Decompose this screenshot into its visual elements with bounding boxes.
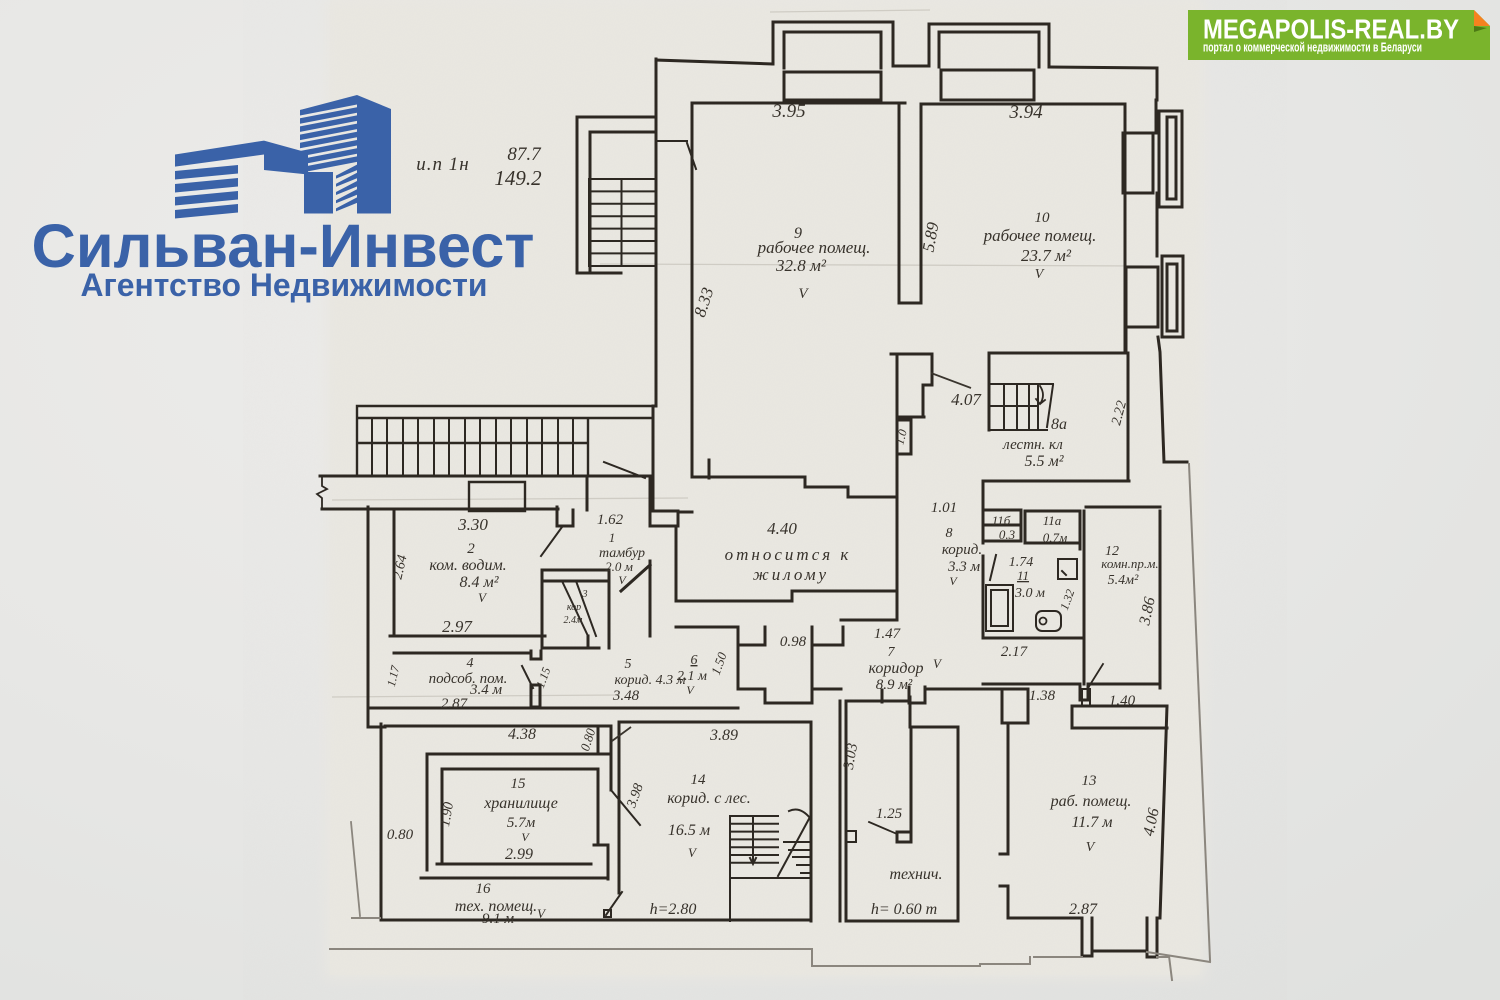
svg-text:3.95: 3.95 <box>771 101 805 122</box>
svg-text:149.2: 149.2 <box>494 166 542 190</box>
svg-text:16.5 м: 16.5 м <box>668 822 710 839</box>
svg-text:11: 11 <box>1017 568 1029 583</box>
svg-text:5.7м: 5.7м <box>507 815 536 831</box>
svg-text:корид. 4.3 м: корид. 4.3 м <box>614 673 685 688</box>
svg-text:4.40: 4.40 <box>767 519 797 538</box>
svg-text:5: 5 <box>625 657 632 672</box>
svg-text:и.п 1н: и.п 1н <box>416 154 469 175</box>
svg-text:2.4м: 2.4м <box>564 615 584 626</box>
svg-text:11б: 11б <box>992 513 1011 528</box>
svg-text:5.5 м²: 5.5 м² <box>1024 453 1064 470</box>
svg-text:8.4 м²: 8.4 м² <box>459 574 499 591</box>
svg-text:2.17: 2.17 <box>1001 644 1029 660</box>
svg-text:3: 3 <box>582 589 588 600</box>
svg-text:раб. помещ.: раб. помещ. <box>1050 793 1132 810</box>
svg-text:корид. с лес.: корид. с лес. <box>667 790 750 807</box>
svg-text:ком. водим.: ком. водим. <box>429 557 506 574</box>
svg-text:h= 0.60 m: h= 0.60 m <box>871 901 937 918</box>
svg-text:1.01: 1.01 <box>931 500 957 516</box>
svg-text:2: 2 <box>467 541 475 557</box>
svg-text:жилому: жилому <box>753 565 829 584</box>
svg-text:8.9 м²: 8.9 м² <box>876 677 913 693</box>
svg-text:1.40: 1.40 <box>1109 693 1136 709</box>
svg-text:0.3: 0.3 <box>999 527 1016 542</box>
svg-text:4.38: 4.38 <box>508 726 536 743</box>
svg-text:h=2.80: h=2.80 <box>650 901 697 918</box>
svg-text:Агентство Недвижимости: Агентство Недвижимости <box>81 267 488 303</box>
svg-text:32.8 м²: 32.8 м² <box>775 256 827 275</box>
svg-text:1.38: 1.38 <box>1029 688 1056 704</box>
svg-text:2.87: 2.87 <box>441 696 469 712</box>
svg-text:комн.пр.м.: комн.пр.м. <box>1101 556 1158 571</box>
svg-text:2.87: 2.87 <box>1069 901 1098 918</box>
svg-text:23.7 м²: 23.7 м² <box>1021 246 1072 265</box>
svg-text:11а: 11а <box>1043 513 1062 528</box>
svg-text:рабочее помещ.: рабочее помещ. <box>757 238 871 257</box>
svg-text:рабочее помещ.: рабочее помещ. <box>983 226 1097 245</box>
svg-text:V: V <box>1035 267 1045 282</box>
svg-text:13: 13 <box>1082 773 1097 789</box>
svg-text:87.7: 87.7 <box>507 144 542 165</box>
svg-text:1.47: 1.47 <box>874 626 902 642</box>
svg-text:1: 1 <box>609 530 616 545</box>
svg-text:технич.: технич. <box>889 866 942 883</box>
svg-text:кор: кор <box>567 602 581 613</box>
svg-text:7: 7 <box>888 645 896 660</box>
svg-text:0.7м: 0.7м <box>1043 530 1068 545</box>
svg-text:3.89: 3.89 <box>709 727 738 744</box>
svg-text:V: V <box>1086 840 1096 855</box>
svg-text:3.94: 3.94 <box>1008 102 1043 123</box>
svg-text:3.30: 3.30 <box>457 515 488 534</box>
svg-text:3.3 м: 3.3 м <box>947 559 981 575</box>
svg-text:10: 10 <box>1035 210 1051 226</box>
svg-text:2.97: 2.97 <box>442 617 473 636</box>
svg-text:8а: 8а <box>1051 416 1067 433</box>
svg-text:3.4 м: 3.4 м <box>469 682 503 698</box>
svg-text:портал о коммерческой недвижим: портал о коммерческой недвижимости в Бел… <box>1203 40 1422 55</box>
svg-text:14: 14 <box>691 772 707 788</box>
svg-text:1.25: 1.25 <box>876 806 903 822</box>
svg-text:9.1 м: 9.1 м <box>482 911 515 927</box>
svg-text:хранилище: хранилище <box>483 795 558 812</box>
svg-text:5.4м²: 5.4м² <box>1108 573 1139 588</box>
svg-text:корид.: корид. <box>942 542 982 558</box>
svg-text:0.98: 0.98 <box>780 634 807 650</box>
svg-text:относится к: относится к <box>725 545 852 564</box>
svg-text:2.99: 2.99 <box>505 846 533 863</box>
svg-text:коридор: коридор <box>869 660 924 677</box>
svg-text:3.0 м: 3.0 м <box>1014 586 1045 601</box>
svg-text:11.7 м: 11.7 м <box>1071 814 1112 831</box>
svg-text:3.48: 3.48 <box>612 688 640 704</box>
svg-text:0.80: 0.80 <box>387 827 414 843</box>
svg-text:2.0 м: 2.0 м <box>605 559 633 574</box>
svg-text:16: 16 <box>476 881 492 897</box>
svg-text:15: 15 <box>511 776 527 792</box>
svg-text:8: 8 <box>946 526 953 541</box>
svg-text:1.62: 1.62 <box>597 512 624 528</box>
svg-text:4: 4 <box>467 656 474 671</box>
svg-text:6: 6 <box>691 653 698 668</box>
svg-text:лестн. кл: лестн. кл <box>1002 437 1063 453</box>
svg-text:4.07: 4.07 <box>951 390 982 409</box>
